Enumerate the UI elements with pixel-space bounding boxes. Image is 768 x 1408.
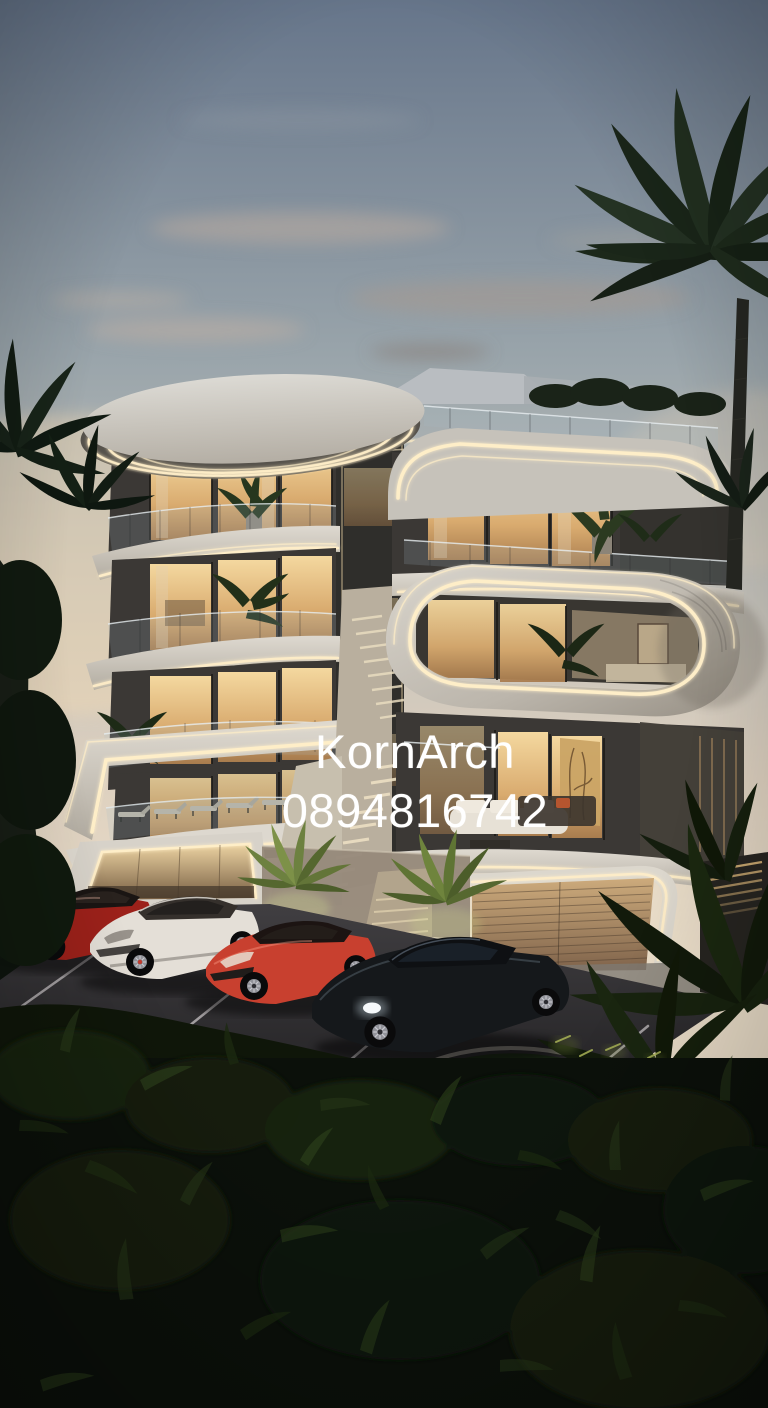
- architectural-render: KornArch 0894816742: [0, 0, 768, 1408]
- watermark: KornArch 0894816742: [0, 722, 768, 840]
- watermark-line-2: 0894816742: [62, 781, 768, 840]
- vignette-overlay: [0, 0, 768, 1408]
- watermark-line-1: KornArch: [62, 722, 768, 781]
- scene-canvas: [0, 0, 768, 1408]
